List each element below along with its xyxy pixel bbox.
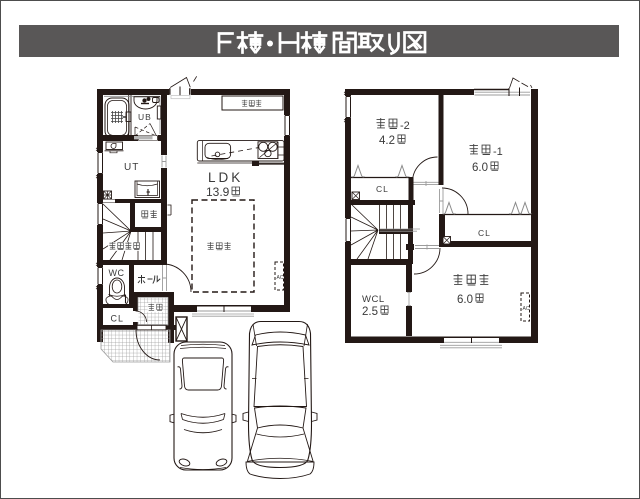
svg-text:-2: -2 (400, 120, 410, 132)
svg-text:CL: CL (478, 228, 491, 238)
svg-text:CL: CL (111, 314, 125, 324)
svg-text:4.2: 4.2 (379, 135, 395, 147)
svg-text:LDK: LDK (208, 170, 243, 185)
svg-text:CL: CL (376, 184, 389, 194)
svg-text:WCL: WCL (362, 294, 385, 305)
svg-text:UT: UT (124, 162, 139, 173)
svg-text:6.0: 6.0 (472, 162, 488, 174)
svg-text:WC: WC (109, 268, 125, 278)
svg-text:13.9: 13.9 (206, 185, 230, 199)
svg-text:-1: -1 (493, 146, 503, 158)
svg-text:AC: AC (277, 275, 284, 281)
svg-text:6.0: 6.0 (457, 294, 473, 306)
svg-text:2.5: 2.5 (362, 306, 378, 318)
svg-text:UB: UB (138, 112, 152, 122)
svg-text:AC: AC (523, 306, 530, 312)
